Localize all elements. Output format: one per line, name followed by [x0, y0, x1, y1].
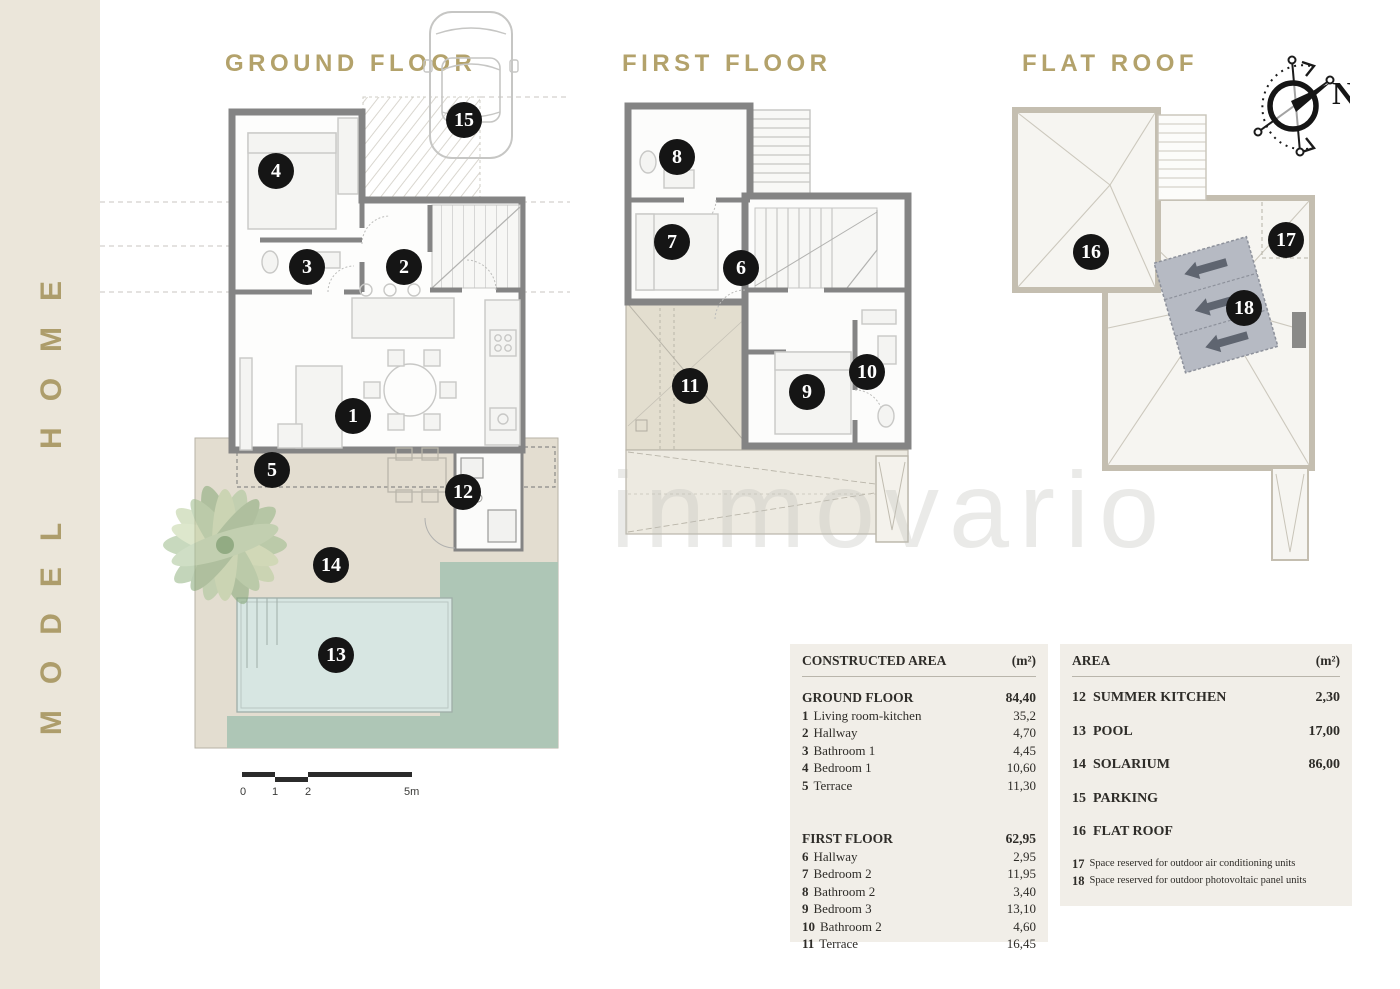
- lower-overhang: [626, 450, 908, 542]
- roof-vent: [1292, 312, 1306, 348]
- first-stair-void: [752, 110, 810, 200]
- table-row: 18Space reserved for outdoor photovoltai…: [1072, 874, 1340, 889]
- roof-stair-void: [1158, 115, 1206, 200]
- room-marker-2: 2: [386, 249, 422, 285]
- flat-roof-title: FLAT ROOF: [1022, 50, 1198, 78]
- table-row: 6Hallway2,95: [802, 848, 1036, 866]
- first-floor-title: FIRST FLOOR: [622, 50, 831, 78]
- area-table-body: 12SUMMER KITCHEN2,3013POOL17,0014SOLARIU…: [1072, 677, 1340, 889]
- area-table-header: AREA (m²): [1072, 653, 1340, 677]
- constructed-header-label: CONSTRUCTED AREA: [802, 653, 946, 669]
- table-row: 12SUMMER KITCHEN2,30: [1072, 689, 1340, 707]
- table-row: 8Bathroom 23,40: [802, 883, 1036, 901]
- area-header-unit: (m²): [1316, 653, 1340, 669]
- scale-bar: 0 1 2 5m: [240, 768, 420, 804]
- compass-icon: N: [1240, 52, 1350, 162]
- room-marker-8: 8: [659, 139, 695, 175]
- scale-label-0: 0: [240, 786, 246, 798]
- table-row: 3Bathroom 14,45: [802, 742, 1036, 760]
- room-marker-15: 15: [446, 102, 482, 138]
- scale-label-1: 1: [272, 786, 278, 798]
- table-row: 15PARKING: [1072, 790, 1340, 808]
- scale-segment: [242, 772, 275, 777]
- floorplan-sheet: MODEL HOME GROUND FLOOR FIRST FLOOR FLAT…: [0, 0, 1400, 989]
- roof-protrusion: [1272, 468, 1308, 560]
- brand-title: MODEL HOME: [35, 255, 69, 735]
- table-row: 9Bedroom 313,10: [802, 900, 1036, 918]
- scale-label-2: 2: [305, 786, 311, 798]
- first-floor-plan: [600, 90, 920, 560]
- table-row: 4Bedroom 110,60: [802, 759, 1036, 777]
- room-marker-3: 3: [289, 249, 325, 285]
- room-marker-11: 11: [672, 368, 708, 404]
- room-marker-18: 18: [1226, 290, 1262, 326]
- room-marker-13: 13: [318, 637, 354, 673]
- scale-segment: [308, 772, 412, 777]
- table-spacer: [802, 794, 1036, 830]
- table-row: 1Living room-kitchen35,2: [802, 707, 1036, 725]
- room-marker-7: 7: [654, 224, 690, 260]
- constructed-table-body: GROUND FLOOR84,401Living room-kitchen35,…: [802, 677, 1036, 953]
- constructed-area-table: CONSTRUCTED AREA (m²) GROUND FLOOR84,401…: [790, 644, 1048, 942]
- constructed-header-unit: (m²): [1012, 653, 1036, 669]
- room-marker-16: 16: [1073, 234, 1109, 270]
- area-table: AREA (m²) 12SUMMER KITCHEN2,3013POOL17,0…: [1060, 644, 1352, 906]
- table-row: 13POOL17,00: [1072, 723, 1340, 741]
- room-marker-17: 17: [1268, 222, 1304, 258]
- room-marker-12: 12: [445, 474, 481, 510]
- constructed-table-header: CONSTRUCTED AREA (m²): [802, 653, 1036, 677]
- table-section-header: GROUND FLOOR84,40: [802, 689, 1036, 707]
- room-marker-4: 4: [258, 153, 294, 189]
- table-row: 11Terrace16,45: [802, 935, 1036, 953]
- scale-label-5m: 5m: [404, 786, 419, 798]
- room-marker-14: 14: [313, 547, 349, 583]
- ground-stairs: [432, 205, 520, 288]
- room-marker-1: 1: [335, 398, 371, 434]
- flat-roof-plan: [1000, 100, 1330, 570]
- area-header-label: AREA: [1072, 653, 1110, 669]
- table-row: 17Space reserved for outdoor air conditi…: [1072, 857, 1340, 872]
- room-marker-6: 6: [723, 250, 759, 286]
- room-marker-10: 10: [849, 354, 885, 390]
- table-section-header: FIRST FLOOR62,95: [802, 830, 1036, 848]
- room-marker-9: 9: [789, 374, 825, 410]
- compass-north-label: N: [1332, 75, 1350, 111]
- scale-segment: [275, 777, 308, 782]
- first-stairs: [755, 208, 877, 288]
- table-row: 14SOLARIUM86,00: [1072, 756, 1340, 774]
- table-row: 7Bedroom 211,95: [802, 865, 1036, 883]
- table-row: 16FLAT ROOF: [1072, 823, 1340, 841]
- table-row: 5Terrace11,30: [802, 777, 1036, 795]
- table-row: 2Hallway4,70: [802, 724, 1036, 742]
- table-row: 10Bathroom 24,60: [802, 918, 1036, 936]
- brand-sidebar: MODEL HOME: [0, 0, 100, 989]
- room-marker-5: 5: [254, 452, 290, 488]
